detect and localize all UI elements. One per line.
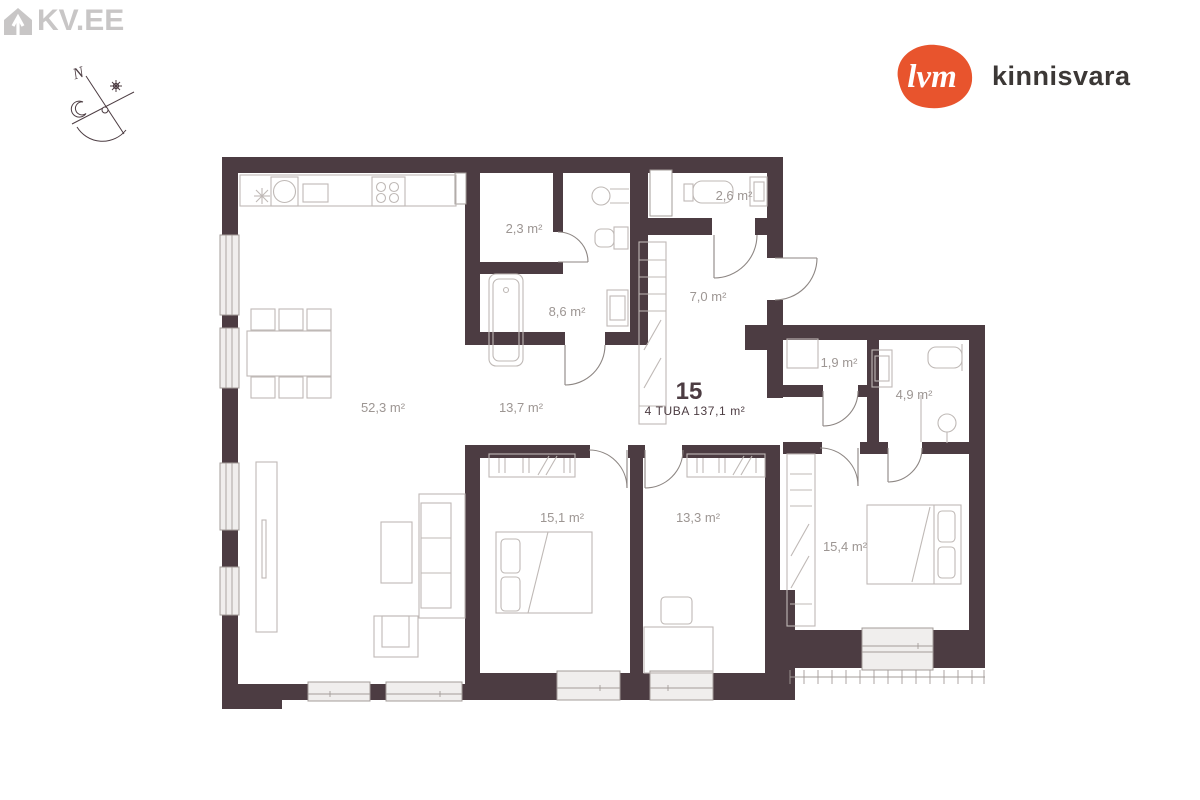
washbasin (750, 177, 767, 206)
moon-icon (71, 101, 86, 117)
floor-plan: N (0, 0, 1200, 800)
bedroom-3-furniture (787, 454, 961, 626)
desk-chair (661, 597, 692, 624)
balcony-door-window (862, 628, 933, 670)
window (220, 567, 239, 615)
double-bed (496, 532, 592, 613)
door-storage (823, 391, 858, 426)
door-bedroom-2 (645, 450, 683, 488)
sofa (419, 494, 465, 618)
sun-icon (110, 80, 122, 92)
balcony-railing (790, 670, 985, 684)
desk (644, 627, 713, 673)
cooktop (372, 177, 405, 206)
walls (222, 157, 985, 709)
kitchen-appliance (303, 184, 328, 202)
window (220, 328, 239, 388)
apartment-number: 15 (676, 378, 703, 405)
apartment-summary: 4 TUBA 137,1 m² (645, 404, 746, 418)
room-label-bathroom: 8,6 m² (549, 304, 587, 319)
storage-shelf (787, 339, 818, 368)
window (557, 671, 620, 700)
armchair (374, 616, 418, 657)
room-label-ensuite: 4,9 m² (896, 387, 934, 402)
apartment-title: 15 4 TUBA 137,1 m² (645, 378, 746, 418)
door-bedroom-3-bath (888, 448, 922, 482)
washing-machine (872, 350, 892, 387)
door-entrance (775, 258, 817, 300)
bathtub (489, 274, 523, 366)
bedroom-2-furniture (644, 454, 765, 673)
living-room-furniture (256, 462, 465, 657)
door-bathroom (565, 345, 605, 385)
door-bedroom-3-hall (820, 448, 858, 486)
room-label-entrance-hall: 7,0 m² (690, 289, 728, 304)
door-wc (714, 235, 757, 278)
kitchen-sink (271, 177, 298, 206)
washing-machine (607, 290, 628, 326)
window (650, 671, 713, 700)
room-label-wc: 2,6 m² (716, 188, 754, 203)
fridge-icon (254, 188, 270, 204)
kitchen-counter (240, 175, 456, 206)
sideboard (256, 462, 277, 632)
room-label-living: 52,3 m² (361, 400, 406, 415)
room-label-bedroom-1: 15,1 m² (540, 510, 585, 525)
window (220, 235, 239, 315)
room-label-closet: 2,3 m² (506, 221, 544, 236)
window (386, 682, 462, 701)
window (308, 682, 370, 701)
compass-rose: N (70, 63, 134, 141)
room-label-hall: 13,7 m² (499, 400, 544, 415)
compass-north-label: N (70, 63, 88, 83)
toilet (928, 344, 962, 371)
room-label-bedroom-3: 15,4 m² (823, 539, 868, 554)
dining-set (247, 309, 331, 398)
room-label-bedroom-2: 13,3 m² (676, 510, 721, 525)
toilet (595, 227, 628, 249)
washbasin (592, 187, 629, 205)
window (220, 463, 239, 530)
door-closet (558, 232, 588, 262)
dining-table (247, 331, 331, 376)
coffee-table (381, 522, 412, 583)
shower (921, 395, 956, 443)
door-bedroom-1 (589, 450, 627, 488)
bedroom-1-furniture (489, 454, 592, 613)
double-bed (867, 505, 961, 584)
room-label-storage: 1,9 m² (821, 355, 859, 370)
